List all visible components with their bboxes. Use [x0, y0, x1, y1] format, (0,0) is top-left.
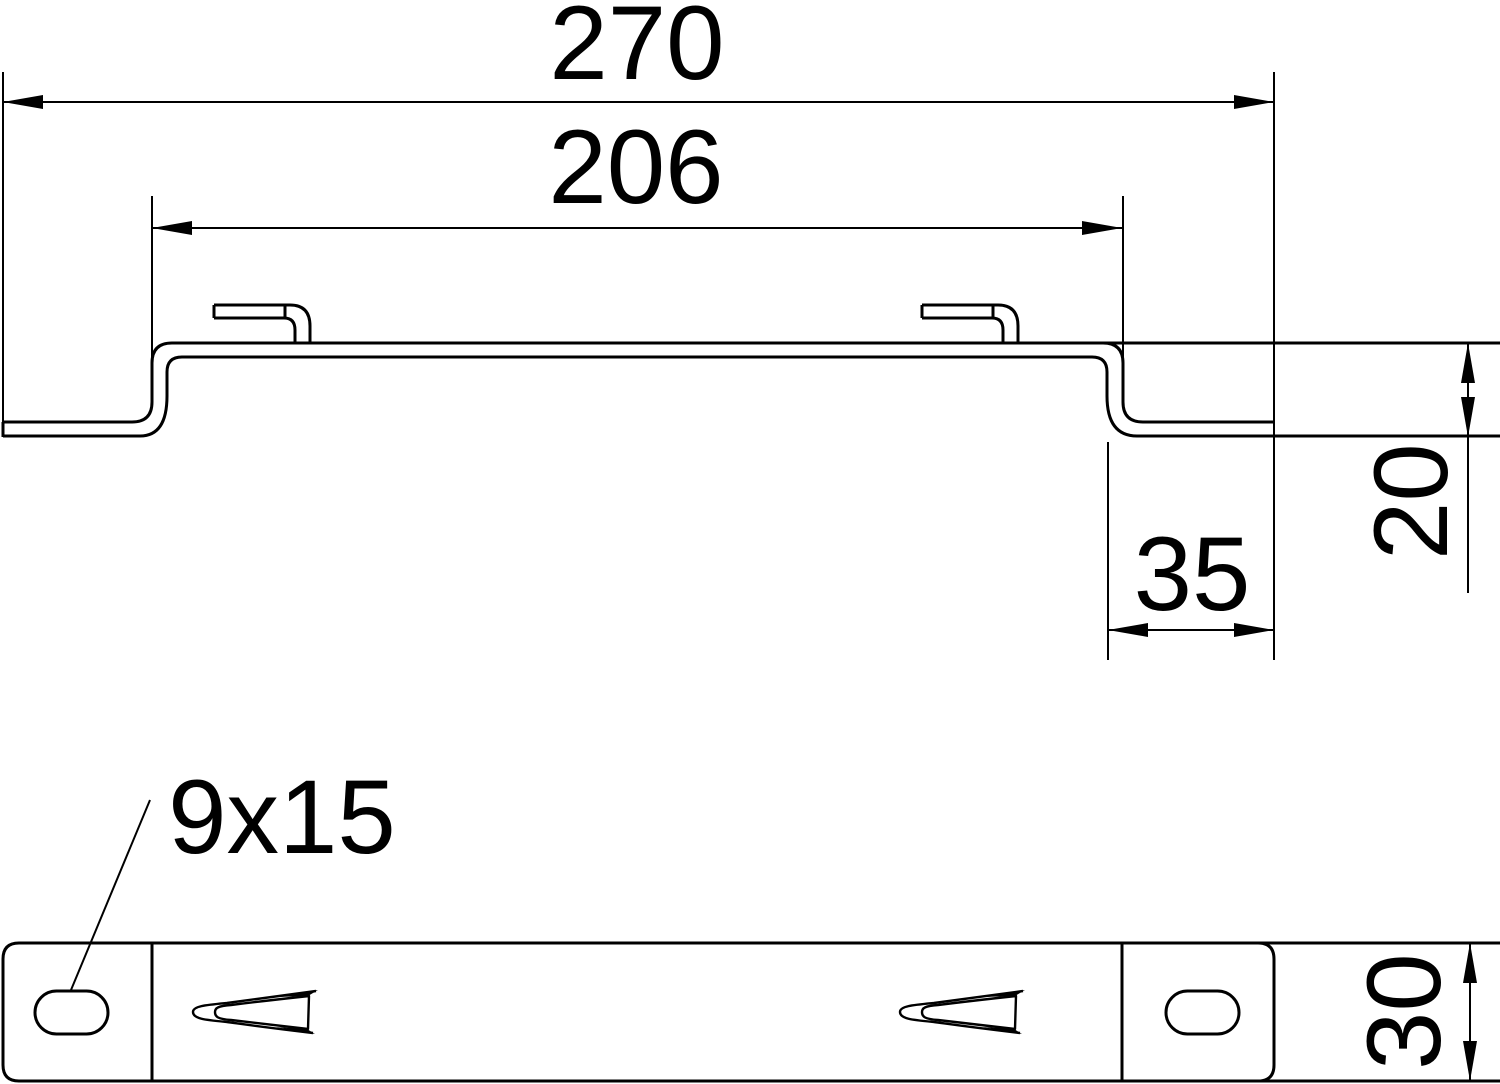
punched-tab-right [900, 990, 1025, 1034]
bracket-dimension-drawing: 270 206 35 20 [0, 0, 1500, 1084]
profile-left-step-inner [3, 357, 182, 436]
dim-206-arrow-left [152, 221, 192, 235]
leader-line-slot [71, 800, 150, 990]
right-clip-tab [922, 305, 1018, 343]
dim-label-20: 20 [1353, 443, 1470, 560]
dim-20-arrow-down [1461, 397, 1475, 437]
plate-right-end [1258, 943, 1274, 1081]
dim-label-slot-size: 9x15 [168, 759, 396, 876]
plan-view: 9x15 30 [3, 759, 1500, 1081]
plate-left-end [3, 943, 19, 1081]
slot-hole-right [1166, 991, 1239, 1034]
profile-left-step-outer [3, 343, 172, 422]
profile-right-step-outer [1103, 343, 1274, 422]
section-view: 270 206 35 20 [3, 0, 1500, 660]
dim-30-arrow-up [1463, 943, 1477, 983]
dim-label-30: 30 [1346, 953, 1463, 1070]
dim-label-206: 206 [548, 109, 723, 226]
left-clip-tab [214, 305, 310, 343]
profile-right-step-inner [1092, 357, 1500, 436]
dim-30-arrow-down [1463, 1041, 1477, 1081]
tab-inner-contour [922, 996, 1016, 1029]
dim-270-arrow-right [1234, 95, 1274, 109]
dim-206-arrow-right [1082, 221, 1122, 235]
dim-label-270: 270 [549, 0, 724, 102]
dim-270-arrow-left [3, 95, 43, 109]
dim-label-35: 35 [1134, 516, 1251, 633]
dim-20-arrow-up [1461, 343, 1475, 383]
technical-drawing-page: 270 206 35 20 [0, 0, 1500, 1084]
slot-hole-left [35, 991, 108, 1034]
tab-inner-contour [215, 996, 309, 1029]
punched-tab-left [193, 990, 318, 1034]
